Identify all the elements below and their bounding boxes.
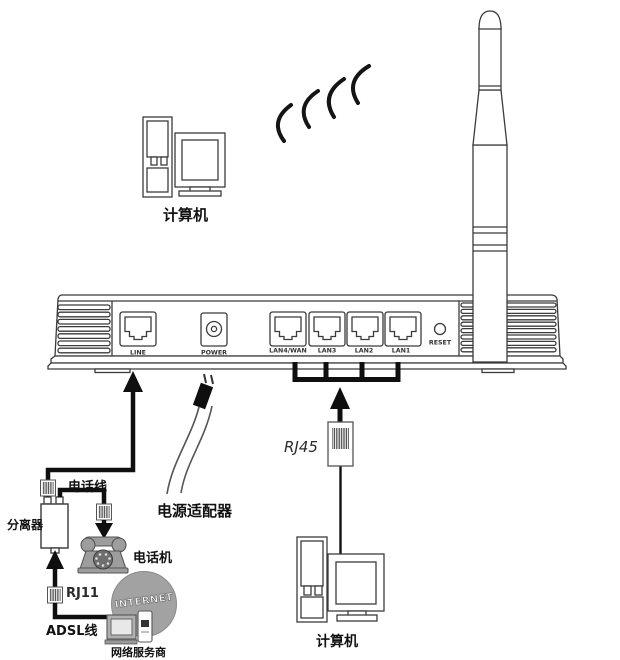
wifi-waves-icon (278, 66, 369, 141)
lan4-wan-port (270, 312, 306, 346)
network-diagram: 计算机 LINE POWER LAN4/WAN LAN3 LAN2 LAN1 R… (0, 0, 620, 660)
isp-label: 网络服务商 (111, 644, 166, 660)
splitter-icon (41, 497, 68, 553)
wired-computer-label: 计算机 (301, 631, 373, 651)
rj45-connector-icon (328, 422, 353, 557)
power-adapter-icon (167, 374, 213, 494)
rj45-arrow (330, 387, 350, 423)
diagram-art (0, 0, 620, 660)
power-port-label: POWER (190, 349, 238, 356)
telephone-label: 电话机 (133, 547, 172, 566)
router-foot (482, 369, 514, 373)
rj11-plug-icon (48, 587, 63, 603)
phone-plug-icon (97, 504, 112, 520)
lan2-port (347, 312, 383, 346)
lan3-port (309, 312, 345, 346)
reset-button (435, 324, 446, 335)
rj11-label: RJ11 (66, 586, 99, 601)
antenna-icon (473, 11, 507, 362)
wireless-computer-icon (143, 117, 225, 197)
rj45-label: RJ45 (284, 438, 318, 456)
phone-line-plug-icon (41, 480, 56, 496)
power-adapter-label: 电源适配器 (157, 500, 232, 521)
power-socket (201, 313, 227, 346)
line-port-label: LINE (114, 349, 162, 356)
isp-computer-icon (105, 611, 152, 644)
wireless-computer-label: 计算机 (149, 204, 222, 225)
router-foot (95, 369, 130, 373)
line-port (120, 312, 156, 346)
reset-label: RESET (416, 339, 464, 346)
adsl-line-label: ADSL线 (46, 620, 98, 639)
telephone-icon (78, 537, 128, 573)
splitter-label: 分离器 (7, 516, 43, 533)
left-vents (58, 305, 110, 353)
phone-line-label: 电话线 (68, 476, 107, 495)
lan1-port-label: LAN1 (377, 347, 425, 354)
